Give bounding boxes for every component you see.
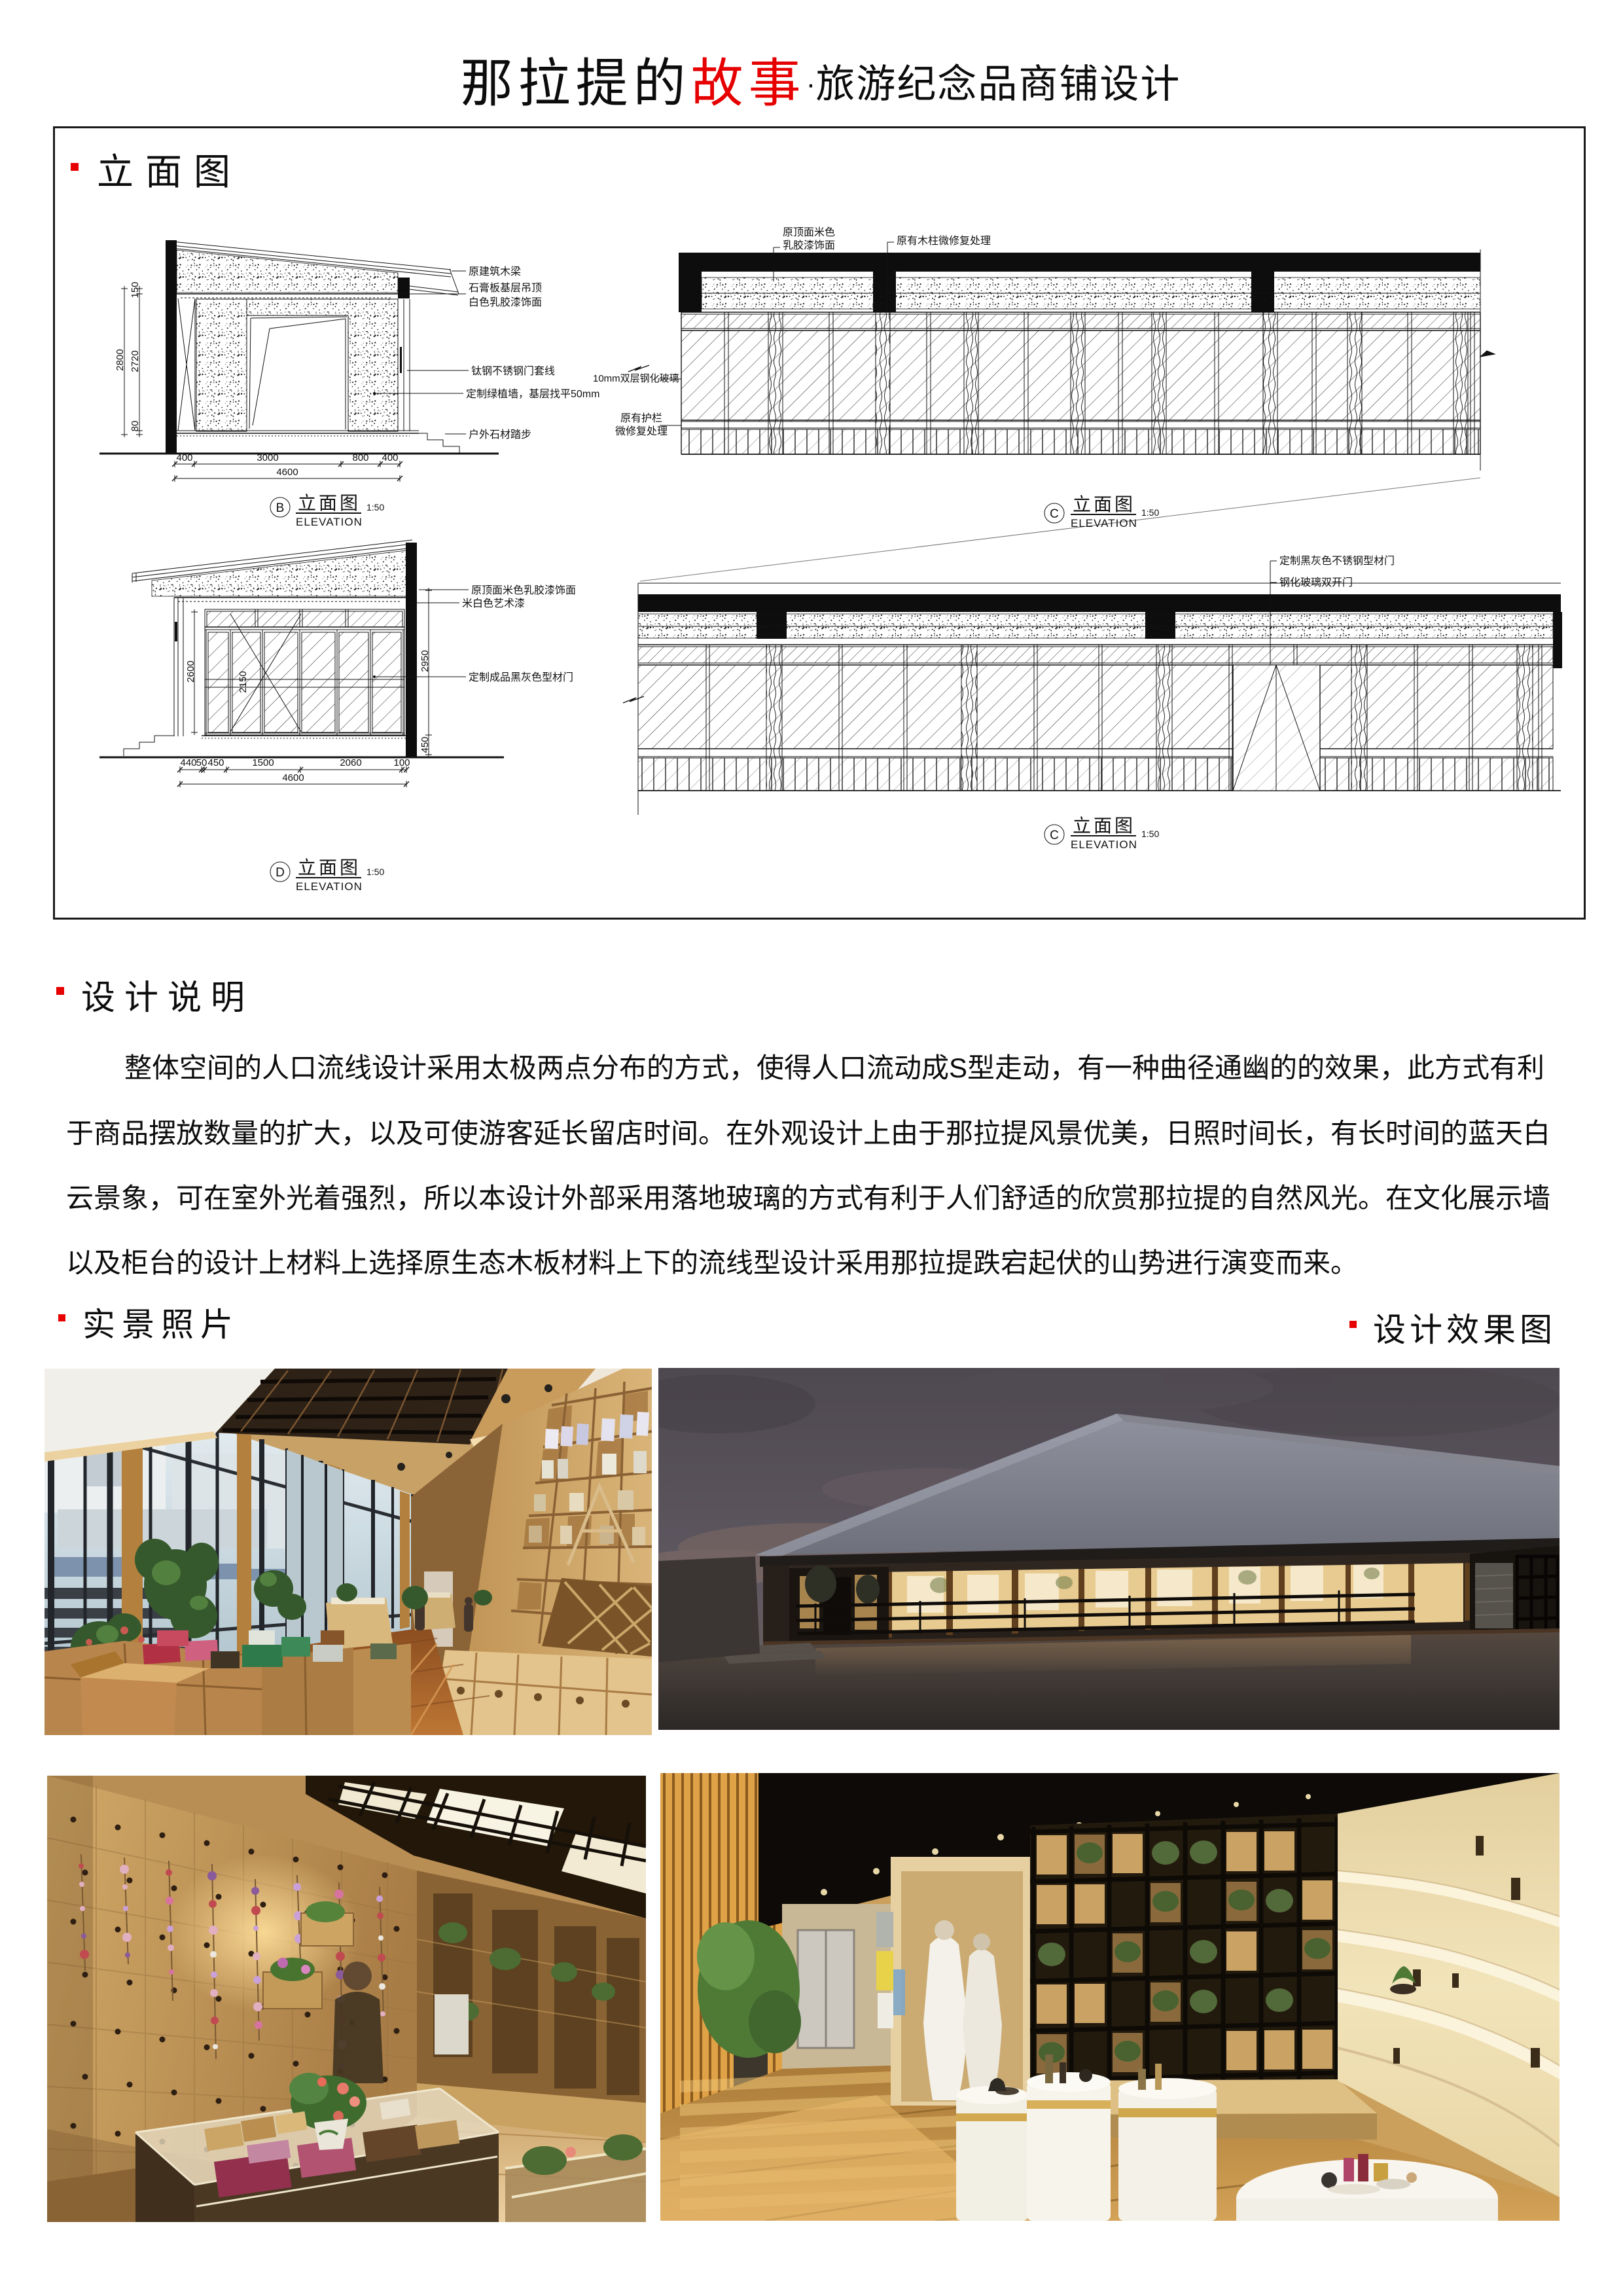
svg-text:C: C xyxy=(1050,507,1059,521)
svg-text:ELEVATION: ELEVATION xyxy=(1071,838,1137,851)
svg-text:乳胶漆饰面: 乳胶漆饰面 xyxy=(783,240,835,251)
svg-text:1:50: 1:50 xyxy=(366,502,384,512)
svg-text:立面图: 立面图 xyxy=(298,857,361,878)
svg-text:定制黑灰色不锈钢型材门: 定制黑灰色不锈钢型材门 xyxy=(1279,555,1395,567)
svg-text:ELEVATION: ELEVATION xyxy=(296,880,363,893)
svg-text:原建筑木梁: 原建筑木梁 xyxy=(469,266,521,278)
svg-text:2800: 2800 xyxy=(115,349,126,370)
svg-text:1:50: 1:50 xyxy=(1141,829,1159,839)
svg-text:钢化玻璃双开门: 钢化玻璃双开门 xyxy=(1279,577,1353,588)
svg-text:原有木柱微修复处理: 原有木柱微修复处理 xyxy=(897,235,991,247)
svg-text:钛钢不锈钢门套线: 钛钢不锈钢门套线 xyxy=(471,365,555,377)
svg-text:50: 50 xyxy=(196,757,207,768)
svg-text:D: D xyxy=(276,866,285,880)
svg-text:ELEVATION: ELEVATION xyxy=(1071,517,1137,529)
svg-text:80: 80 xyxy=(130,421,141,432)
svg-text:150: 150 xyxy=(130,281,141,298)
svg-text:B: B xyxy=(276,501,285,515)
svg-text:户外石材踏步: 户外石材踏步 xyxy=(469,429,531,440)
svg-text:原顶面米色: 原顶面米色 xyxy=(783,226,835,238)
svg-text:定制成品黑灰色型材门: 定制成品黑灰色型材门 xyxy=(469,672,573,683)
svg-text:2600: 2600 xyxy=(185,660,196,682)
svg-text:10mm双层钢化玻璃: 10mm双层钢化玻璃 xyxy=(593,373,679,384)
svg-text:白色乳胶漆饰面: 白色乳胶漆饰面 xyxy=(469,296,542,308)
svg-text:400: 400 xyxy=(176,452,192,463)
svg-text:C: C xyxy=(1050,829,1059,842)
svg-text:100: 100 xyxy=(393,757,410,768)
svg-text:定制绿植墙，基层找平50mm: 定制绿植墙，基层找平50mm xyxy=(466,388,599,400)
svg-text:3000: 3000 xyxy=(257,452,278,463)
svg-text:立面图: 立面图 xyxy=(1073,816,1135,836)
svg-text:2720: 2720 xyxy=(130,350,141,372)
svg-text:微修复处理: 微修复处理 xyxy=(615,425,668,437)
svg-text:2150: 2150 xyxy=(238,671,249,692)
svg-text:400: 400 xyxy=(382,452,398,463)
svg-text:立面图: 立面图 xyxy=(298,493,361,513)
svg-text:4600: 4600 xyxy=(276,467,298,478)
svg-text:1500: 1500 xyxy=(252,757,274,768)
svg-text:800: 800 xyxy=(352,452,368,463)
svg-text:1:50: 1:50 xyxy=(366,867,384,877)
svg-text:440: 440 xyxy=(180,757,196,768)
svg-text:2060: 2060 xyxy=(340,757,361,768)
svg-text:1:50: 1:50 xyxy=(1141,507,1159,518)
svg-text:原有护栏: 原有护栏 xyxy=(620,412,662,424)
svg-text:450: 450 xyxy=(207,757,224,768)
svg-text:ELEVATION: ELEVATION xyxy=(296,516,363,528)
svg-text:米白色艺术漆: 米白色艺术漆 xyxy=(462,598,525,609)
svg-text:立面图: 立面图 xyxy=(1073,494,1135,514)
svg-text:4600: 4600 xyxy=(282,772,304,783)
svg-text:原顶面米色乳胶漆饰面: 原顶面米色乳胶漆饰面 xyxy=(471,584,576,596)
svg-text:石膏板基层吊顶: 石膏板基层吊顶 xyxy=(469,281,542,294)
svg-text:2950: 2950 xyxy=(419,650,431,672)
svg-text:450: 450 xyxy=(419,736,431,753)
